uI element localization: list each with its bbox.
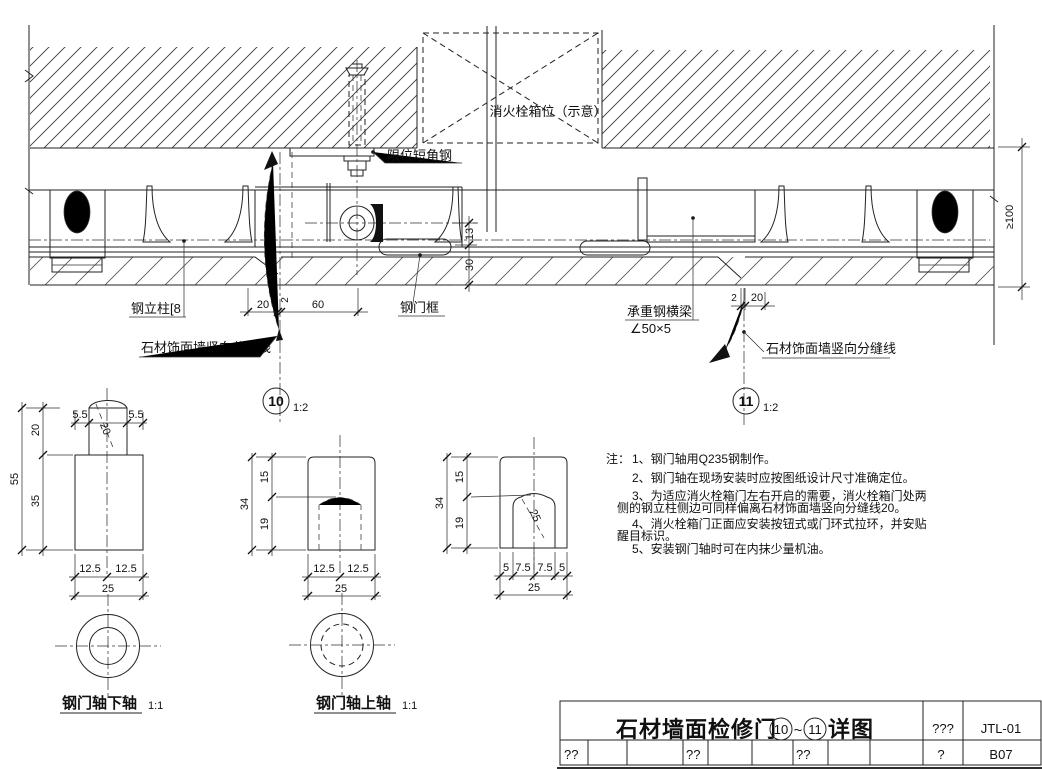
titleblock-cell-q4: ? — [937, 747, 944, 762]
dim-min100: ≥100 — [998, 138, 1030, 300]
dim-60: 60 — [312, 299, 324, 311]
marker-11-num: 11 — [739, 393, 754, 409]
sheet-title-prefix: 石材墙面检修门 — [615, 717, 777, 742]
sleeve-dim-19: 19 — [259, 518, 271, 530]
door-frame-label: 钢门框 — [400, 300, 439, 315]
pin-detail-scale: 1:1 — [148, 700, 163, 712]
titleblock-cell-q3: ?? — [796, 747, 810, 762]
joint-line-right-label: 石材饰面墙竖向分缝线 — [766, 341, 896, 356]
socket-dim-19: 19 — [454, 517, 466, 529]
dim-20-right: 20 — [751, 292, 763, 304]
sleeve-detail-title: 钢门轴上轴 — [316, 694, 391, 712]
dim-30: 30 — [464, 259, 476, 271]
sleeve-detail-view: 34 15 19 12.5 12.5 25 钢门轴上轴 1:1 — [239, 435, 417, 713]
sheet-title: 石材墙面检修门 10 ~ 11 详图 — [615, 717, 874, 742]
socket-dim-5-l: 5 — [503, 562, 509, 574]
beam-spec-label: ∠50×5 — [630, 321, 671, 336]
sleeve-dim-25: 25 — [335, 583, 347, 595]
section-view: 消火栓箱位（示意） — [25, 25, 1030, 425]
note-line-1: 1、钢门轴用Q235钢制作。 — [632, 451, 776, 466]
beam-name-label: 承重钢横梁 — [627, 304, 692, 319]
drawing-code: JTL-01 — [981, 721, 1021, 736]
pin-dim-12.5-l: 12.5 — [79, 563, 100, 575]
detail-marker-11: 11 1:2 — [733, 388, 778, 414]
pin-plan-circle — [55, 594, 161, 698]
pin-dim-20: 20 — [30, 424, 42, 436]
marker-10-scale: 1:2 — [293, 402, 308, 414]
pin-dim-5.5-r: 5.5 — [128, 409, 143, 421]
sheet-title-suffix: 详图 — [828, 717, 874, 742]
sleeve-plan-circle — [289, 593, 395, 697]
socket-dim-15: 15 — [454, 471, 466, 483]
socket-dims: 34 15 19 5 7.5 7.5 5 25 — [434, 453, 573, 600]
sheet-title-tilde: ~ — [794, 722, 803, 739]
socket-dim-7.5-r: 7.5 — [537, 562, 552, 574]
pin-dim-35: 35 — [30, 495, 42, 507]
limit-angle-label: 限位短角钢 — [387, 148, 452, 163]
title-block: 石材墙面检修门 10 ~ 11 详图 ??? JTL-01 ?? ?? ?? ?… — [557, 701, 1042, 768]
cad-drawing-sheet: 消火栓箱位（示意） — [0, 0, 1042, 769]
note-line-4b: 醒目标识。 — [617, 529, 677, 543]
note-line-5: 5、安装钢门轴时可在内抹少量机油。 — [632, 541, 831, 556]
pin-detail-title: 钢门轴下轴 — [62, 694, 137, 712]
dim-min100: ≥100 — [1004, 205, 1016, 229]
sleeve-dim-15: 15 — [259, 471, 271, 483]
pin-dim-55: 55 — [9, 473, 21, 485]
fire-box-label: 消火栓箱位（示意） — [489, 104, 606, 119]
note-line-2: 2、钢门轴在现场安装时应按图纸设计尺寸准确定位。 — [632, 470, 915, 485]
dim-2-left: 2 — [280, 297, 291, 303]
dim-left-group: 20 60 2 — [240, 288, 368, 316]
sleeve-dim-34: 34 — [239, 498, 251, 510]
sleeve-dims: 34 15 19 12.5 12.5 25 — [239, 453, 381, 600]
note-line-3b: 侧的钢立柱侧边可同样偏离石材饰面墙竖向分缝线20。 — [617, 500, 906, 515]
wall-band-lines — [29, 187, 994, 285]
pin-dims: 5.5 5.5 55 20 35 12.5 12.5 25 — [9, 402, 149, 600]
steel-column-label: 钢立柱[8 — [131, 301, 181, 316]
section-labels: 钢立柱[8 钢门框 石材饰面墙竖向分缝线 承重钢横梁 ∠50×5 石材饰面墙竖向… — [129, 216, 896, 358]
sheet-number: B07 — [989, 747, 1012, 762]
socket-dim-25: 25 — [528, 582, 540, 594]
socket-dim-7.5-l: 7.5 — [515, 562, 530, 574]
dim-13: 13 — [464, 228, 476, 240]
sleeve-detail-scale: 1:1 — [402, 700, 417, 712]
titleblock-placeholder-3q: ??? — [932, 721, 954, 736]
pin-detail-view: 20 5.5 5.5 55 20 35 12.5 12.5 25 钢门轴下轴 1… — [9, 388, 163, 713]
dim-20-left: 20 — [257, 299, 269, 311]
pin-dim-12.5-r: 12.5 — [115, 563, 136, 575]
titleblock-cell-q1: ?? — [564, 747, 578, 762]
dim-right-group: 2 20 — [731, 288, 775, 310]
dim-2-right: 2 — [731, 293, 737, 304]
socket-dim-5-r: 5 — [559, 562, 565, 574]
joint-centerlines — [280, 152, 744, 425]
fire-hydrant-box: 消火栓箱位（示意） — [423, 26, 607, 232]
marker-10-num: 10 — [268, 393, 284, 409]
marker-11-scale: 1:2 — [763, 402, 778, 414]
sheet-title-num-to: 11 — [808, 722, 822, 737]
sheet-title-num-from: 10 — [774, 722, 788, 737]
detail-marker-10: 10 1:2 — [263, 388, 308, 414]
socket-dia-label: 25 — [527, 508, 543, 524]
pin-dim-25: 25 — [102, 583, 114, 595]
pin-dim-5.5-l: 5.5 — [72, 409, 87, 421]
drawing-canvas: 消火栓箱位（示意） — [0, 0, 1042, 769]
concrete-wall-right — [602, 25, 998, 345]
titleblock-cell-q2: ?? — [686, 747, 700, 762]
socket-detail-view: 25 34 15 19 5 7.5 7.5 5 25 — [434, 437, 573, 600]
socket-dim-34: 34 — [434, 497, 446, 509]
sleeve-dim-12.5-l: 12.5 — [313, 563, 334, 575]
sleeve-dim-12.5-r: 12.5 — [347, 563, 368, 575]
notes-block: 注： 1、钢门轴用Q235钢制作。 2、钢门轴在现场安装时应按图纸设计尺寸准确定… — [606, 451, 927, 556]
notes-prefix: 注： — [606, 451, 630, 466]
